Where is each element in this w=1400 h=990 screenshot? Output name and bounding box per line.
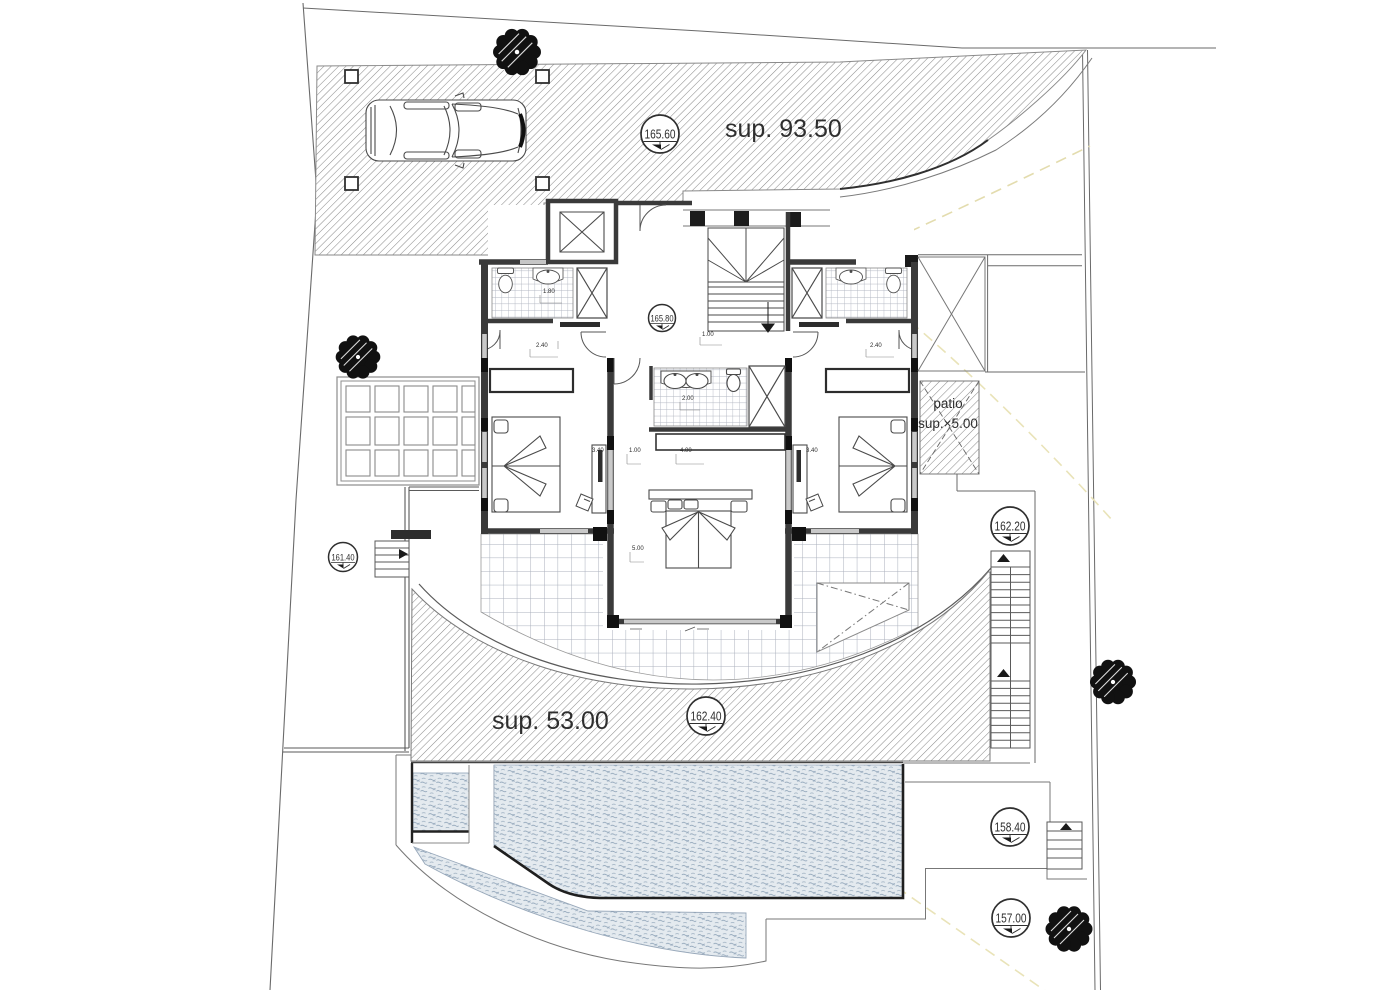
svg-text:165.60: 165.60	[645, 127, 676, 142]
svg-text:4.00: 4.00	[680, 448, 692, 454]
svg-text:2.40: 2.40	[536, 343, 548, 349]
svg-text:3.40: 3.40	[806, 448, 818, 454]
svg-text:162.20: 162.20	[995, 519, 1026, 534]
svg-text:patio: patio	[933, 396, 962, 411]
svg-text:162.40: 162.40	[691, 709, 722, 724]
svg-text:2.00: 2.00	[682, 396, 694, 402]
svg-text:sup.×5.00: sup.×5.00	[918, 416, 978, 431]
svg-text:1.80: 1.80	[543, 289, 555, 295]
svg-text:3.40: 3.40	[592, 448, 604, 454]
svg-text:5.00: 5.00	[632, 546, 644, 552]
svg-text:157.00: 157.00	[996, 911, 1027, 926]
svg-text:1.00: 1.00	[629, 448, 641, 454]
svg-text:161.40: 161.40	[332, 553, 355, 564]
svg-text:sup. 53.00: sup. 53.00	[492, 707, 609, 735]
svg-text:158.40: 158.40	[995, 820, 1026, 835]
svg-text:sup. 93.50: sup. 93.50	[725, 115, 842, 143]
svg-text:165.80: 165.80	[651, 314, 674, 325]
svg-text:2.40: 2.40	[870, 343, 882, 349]
svg-text:1.00: 1.00	[702, 332, 714, 338]
